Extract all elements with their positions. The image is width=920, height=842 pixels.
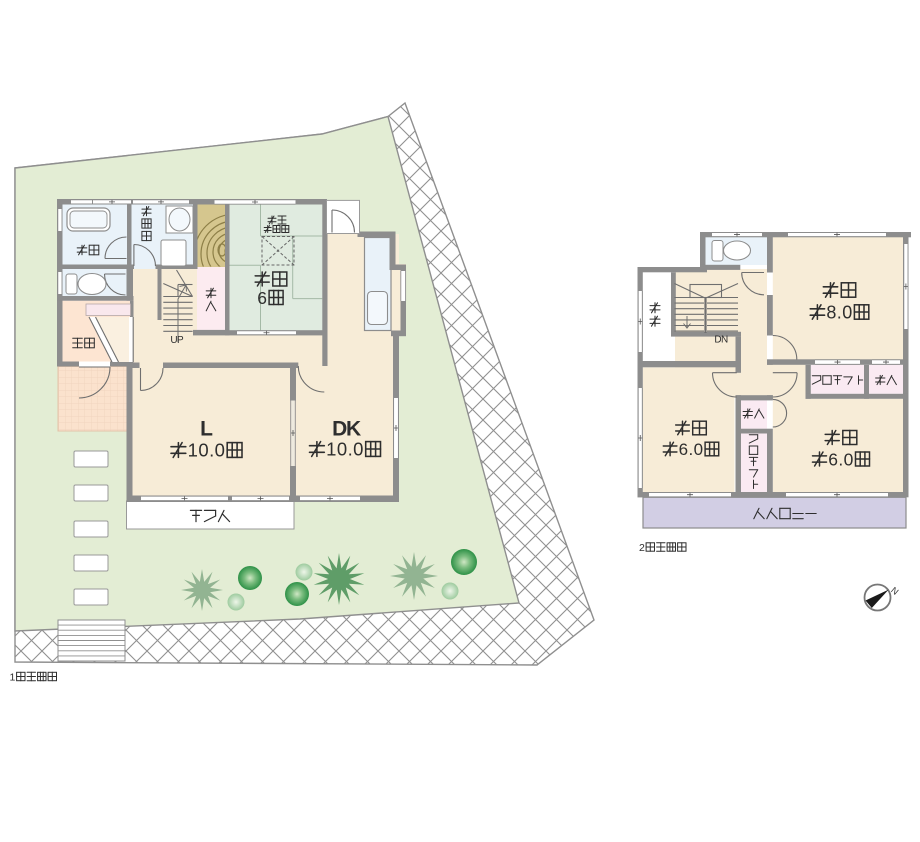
svg-text:0: 0: [694, 440, 703, 459]
svg-text:.: .: [838, 449, 843, 469]
svg-text:0: 0: [844, 449, 854, 469]
svg-text:D: D: [332, 418, 347, 441]
svg-text:0: 0: [198, 440, 208, 461]
svg-text:6: 6: [679, 440, 688, 459]
svg-text:.: .: [348, 439, 353, 460]
svg-text:1: 1: [188, 440, 198, 461]
svg-text:L: L: [200, 418, 213, 441]
svg-text:1: 1: [326, 439, 336, 460]
svg-text:.: .: [837, 303, 842, 323]
svg-text:.: .: [689, 440, 694, 459]
svg-text:N: N: [721, 335, 728, 346]
svg-text:2: 2: [639, 542, 645, 554]
svg-text:K: K: [346, 418, 361, 441]
svg-text:1: 1: [10, 671, 16, 683]
svg-text:6: 6: [257, 288, 267, 308]
svg-text:0: 0: [842, 303, 852, 323]
svg-text:P: P: [177, 335, 184, 346]
svg-text:0: 0: [353, 439, 363, 460]
svg-text:0: 0: [337, 439, 347, 460]
svg-text:6: 6: [828, 449, 838, 469]
svg-text:.: .: [209, 440, 214, 461]
svg-text:0: 0: [215, 440, 225, 461]
svg-text:8: 8: [826, 303, 836, 323]
